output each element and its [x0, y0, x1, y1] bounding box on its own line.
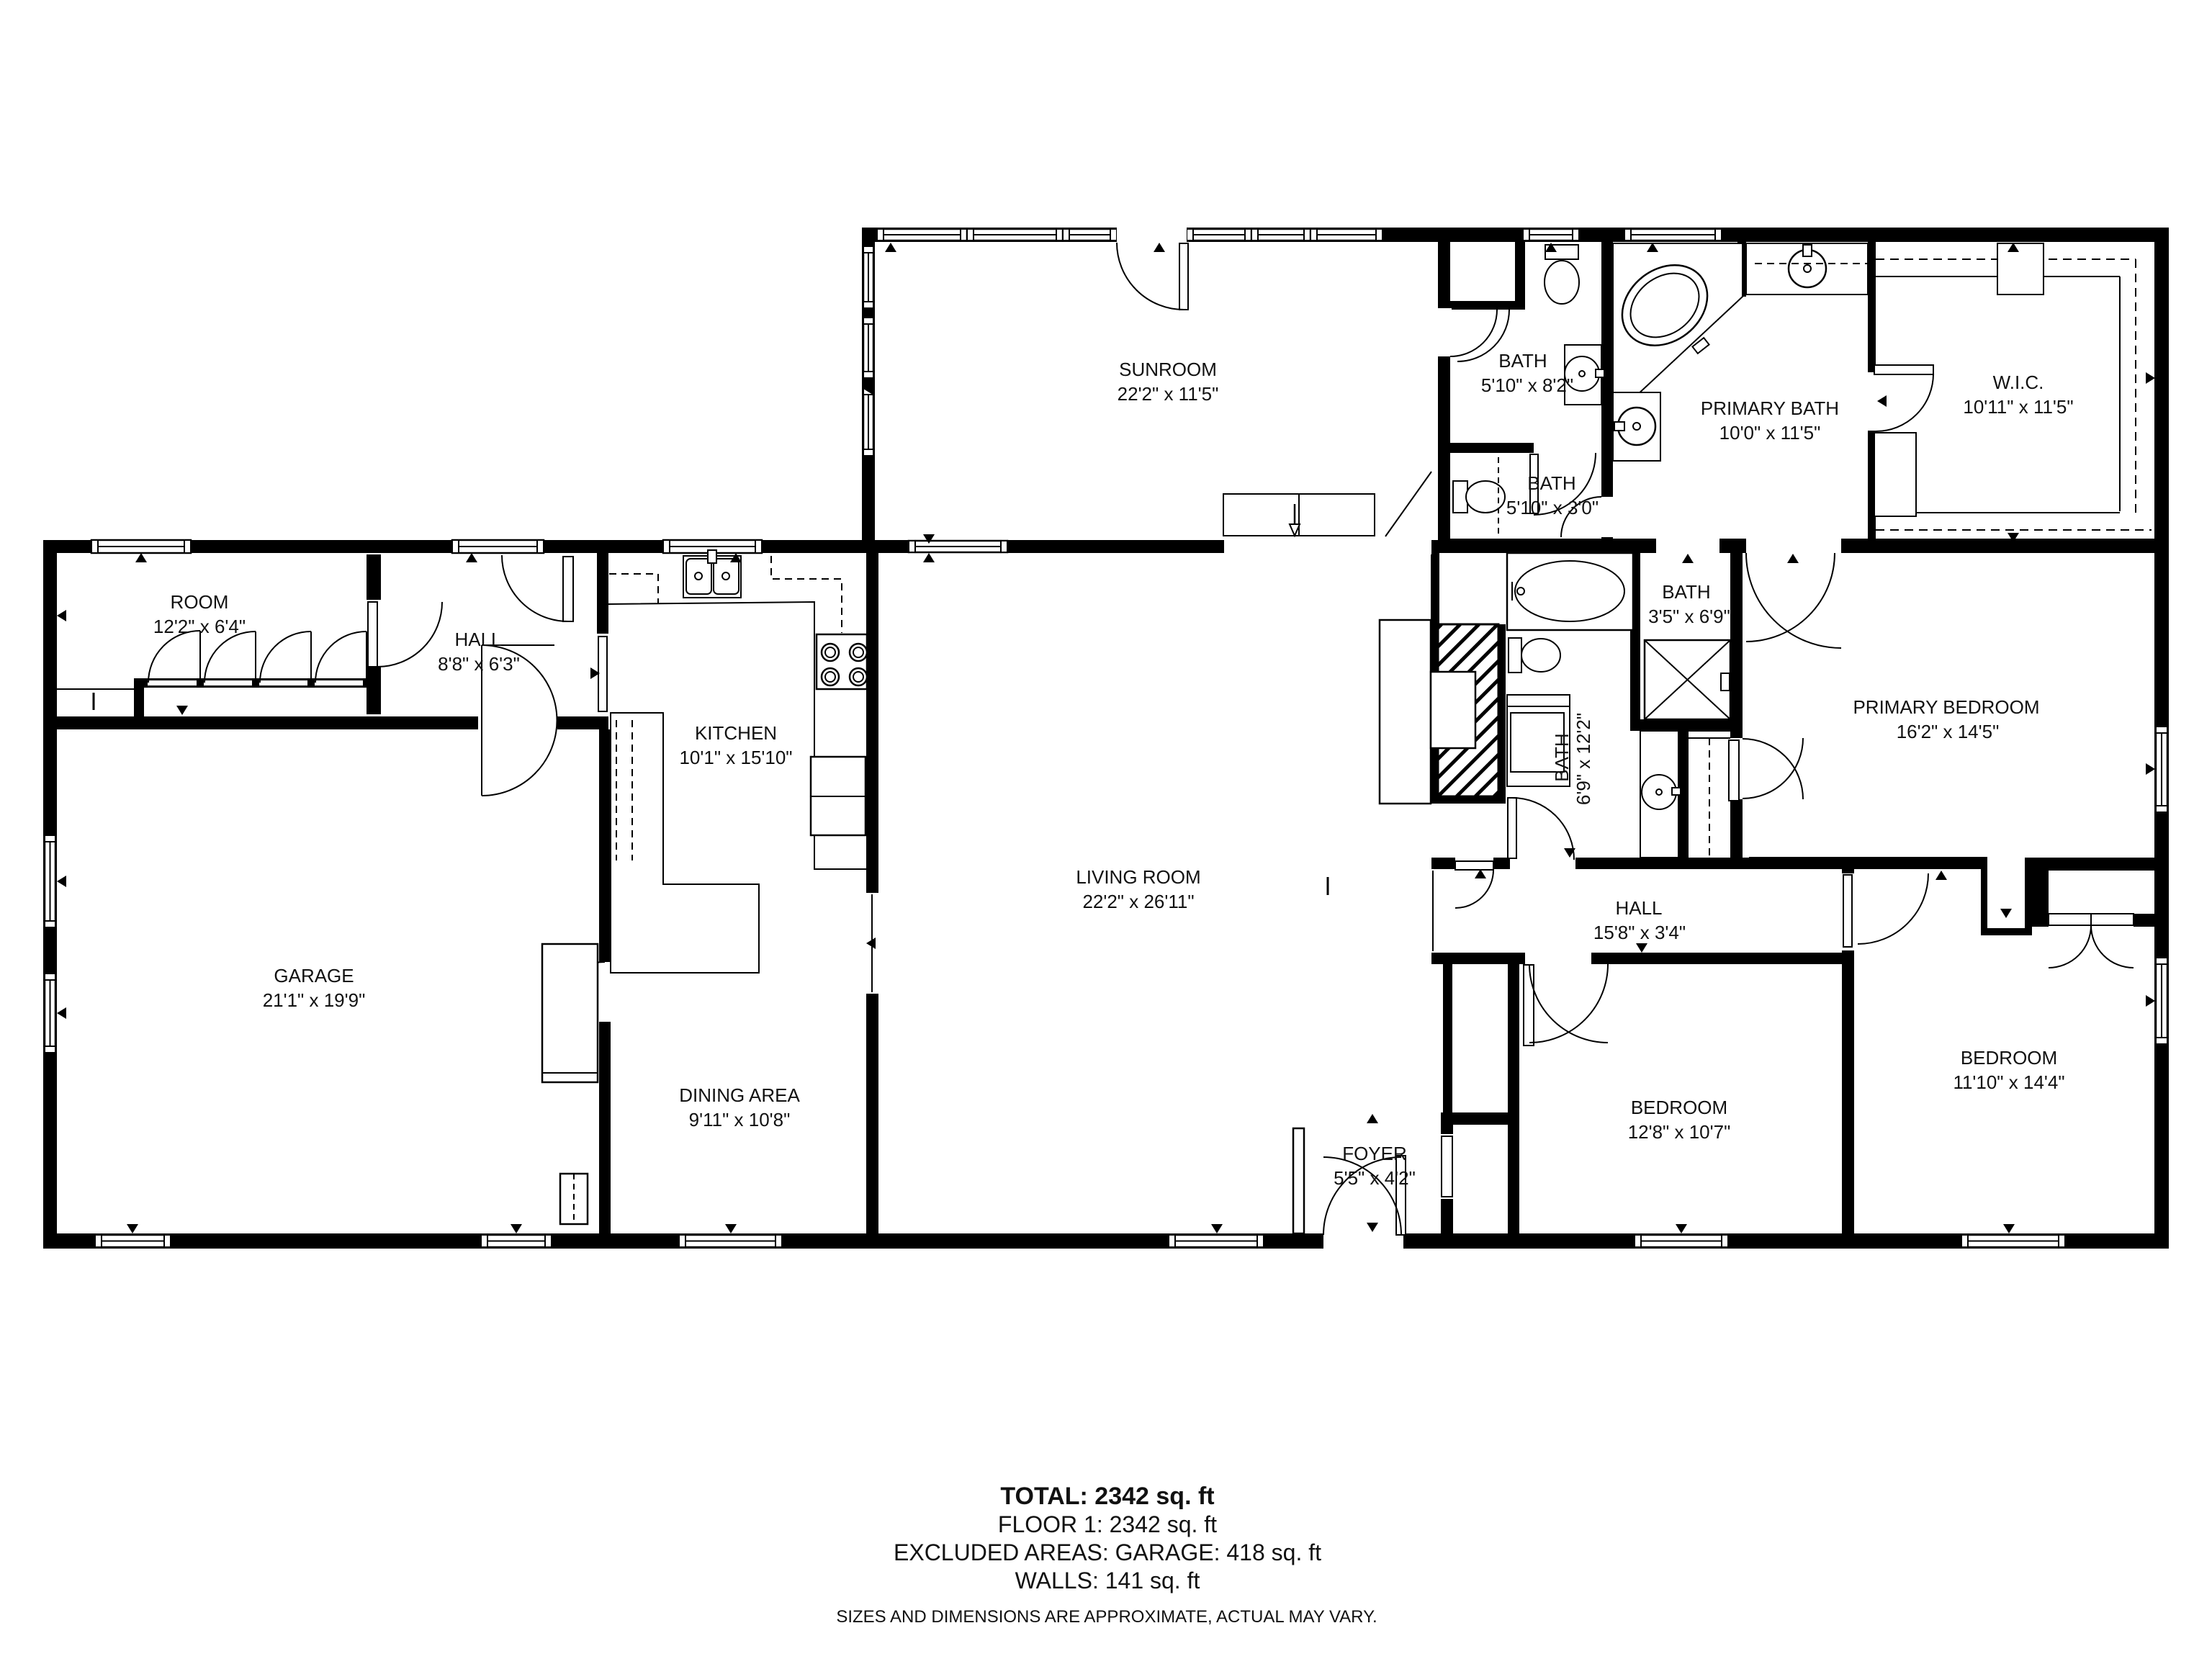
- svg-text:9'11" x 10'8": 9'11" x 10'8": [689, 1109, 791, 1130]
- svg-text:SUNROOM: SUNROOM: [1119, 359, 1217, 380]
- svg-text:BEDROOM: BEDROOM: [1961, 1047, 2057, 1069]
- svg-text:DINING AREA: DINING AREA: [679, 1084, 800, 1106]
- svg-text:W.I.C.: W.I.C.: [1993, 372, 2044, 393]
- svg-text:WALLS: 141 sq. ft: WALLS: 141 sq. ft: [1015, 1568, 1200, 1593]
- svg-text:HALL: HALL: [454, 629, 501, 650]
- svg-text:21'1" x 19'9": 21'1" x 19'9": [263, 989, 366, 1011]
- svg-text:BEDROOM: BEDROOM: [1631, 1097, 1727, 1118]
- svg-text:12'2" x 6'4": 12'2" x 6'4": [153, 616, 246, 637]
- svg-text:KITCHEN: KITCHEN: [695, 722, 777, 744]
- svg-text:10'11" x 11'5": 10'11" x 11'5": [1963, 396, 2073, 418]
- svg-text:10'1" x 15'10": 10'1" x 15'10": [679, 747, 792, 768]
- svg-text:BATH: BATH: [1551, 733, 1573, 781]
- svg-text:PRIMARY BEDROOM: PRIMARY BEDROOM: [1853, 696, 2039, 718]
- svg-text:15'8" x 3'4": 15'8" x 3'4": [1593, 922, 1686, 943]
- svg-text:FOYER: FOYER: [1342, 1143, 1407, 1164]
- svg-text:HALL: HALL: [1615, 897, 1662, 919]
- svg-text:SIZES AND DIMENSIONS ARE APPRO: SIZES AND DIMENSIONS ARE APPROXIMATE, AC…: [836, 1607, 1377, 1627]
- svg-text:11'10" x 14'4": 11'10" x 14'4": [1953, 1071, 2064, 1093]
- svg-text:8'8" x 6'3": 8'8" x 6'3": [438, 653, 520, 675]
- svg-text:PRIMARY BATH: PRIMARY BATH: [1701, 397, 1839, 419]
- svg-text:ROOM: ROOM: [171, 591, 229, 613]
- svg-text:5'5" x 4'2": 5'5" x 4'2": [1334, 1167, 1416, 1189]
- svg-text:22'2" x 11'5": 22'2" x 11'5": [1118, 383, 1219, 405]
- svg-text:BATH: BATH: [1527, 472, 1575, 494]
- svg-text:EXCLUDED AREAS: GARAGE: 418 sq: EXCLUDED AREAS: GARAGE: 418 sq. ft: [894, 1539, 1321, 1565]
- svg-text:TOTAL: 2342 sq. ft: TOTAL: 2342 sq. ft: [1000, 1483, 1214, 1510]
- svg-text:5'10" x 8'2": 5'10" x 8'2": [1481, 374, 1573, 396]
- svg-text:LIVING ROOM: LIVING ROOM: [1076, 866, 1200, 888]
- svg-text:6'9" x 12'2": 6'9" x 12'2": [1573, 713, 1594, 805]
- svg-text:12'8" x 10'7": 12'8" x 10'7": [1628, 1121, 1731, 1143]
- svg-text:BATH: BATH: [1498, 350, 1547, 372]
- svg-text:3'5" x 6'9": 3'5" x 6'9": [1648, 606, 1730, 627]
- svg-text:16'2" x 14'5": 16'2" x 14'5": [1897, 721, 2000, 742]
- svg-text:BATH: BATH: [1662, 581, 1710, 603]
- svg-text:10'0" x 11'5": 10'0" x 11'5": [1719, 422, 1821, 444]
- svg-text:5'10" x 3'0": 5'10" x 3'0": [1506, 497, 1599, 518]
- svg-text:22'2" x 26'11": 22'2" x 26'11": [1082, 891, 1194, 912]
- svg-text:GARAGE: GARAGE: [274, 965, 354, 986]
- svg-text:FLOOR 1: 2342 sq. ft: FLOOR 1: 2342 sq. ft: [998, 1511, 1217, 1537]
